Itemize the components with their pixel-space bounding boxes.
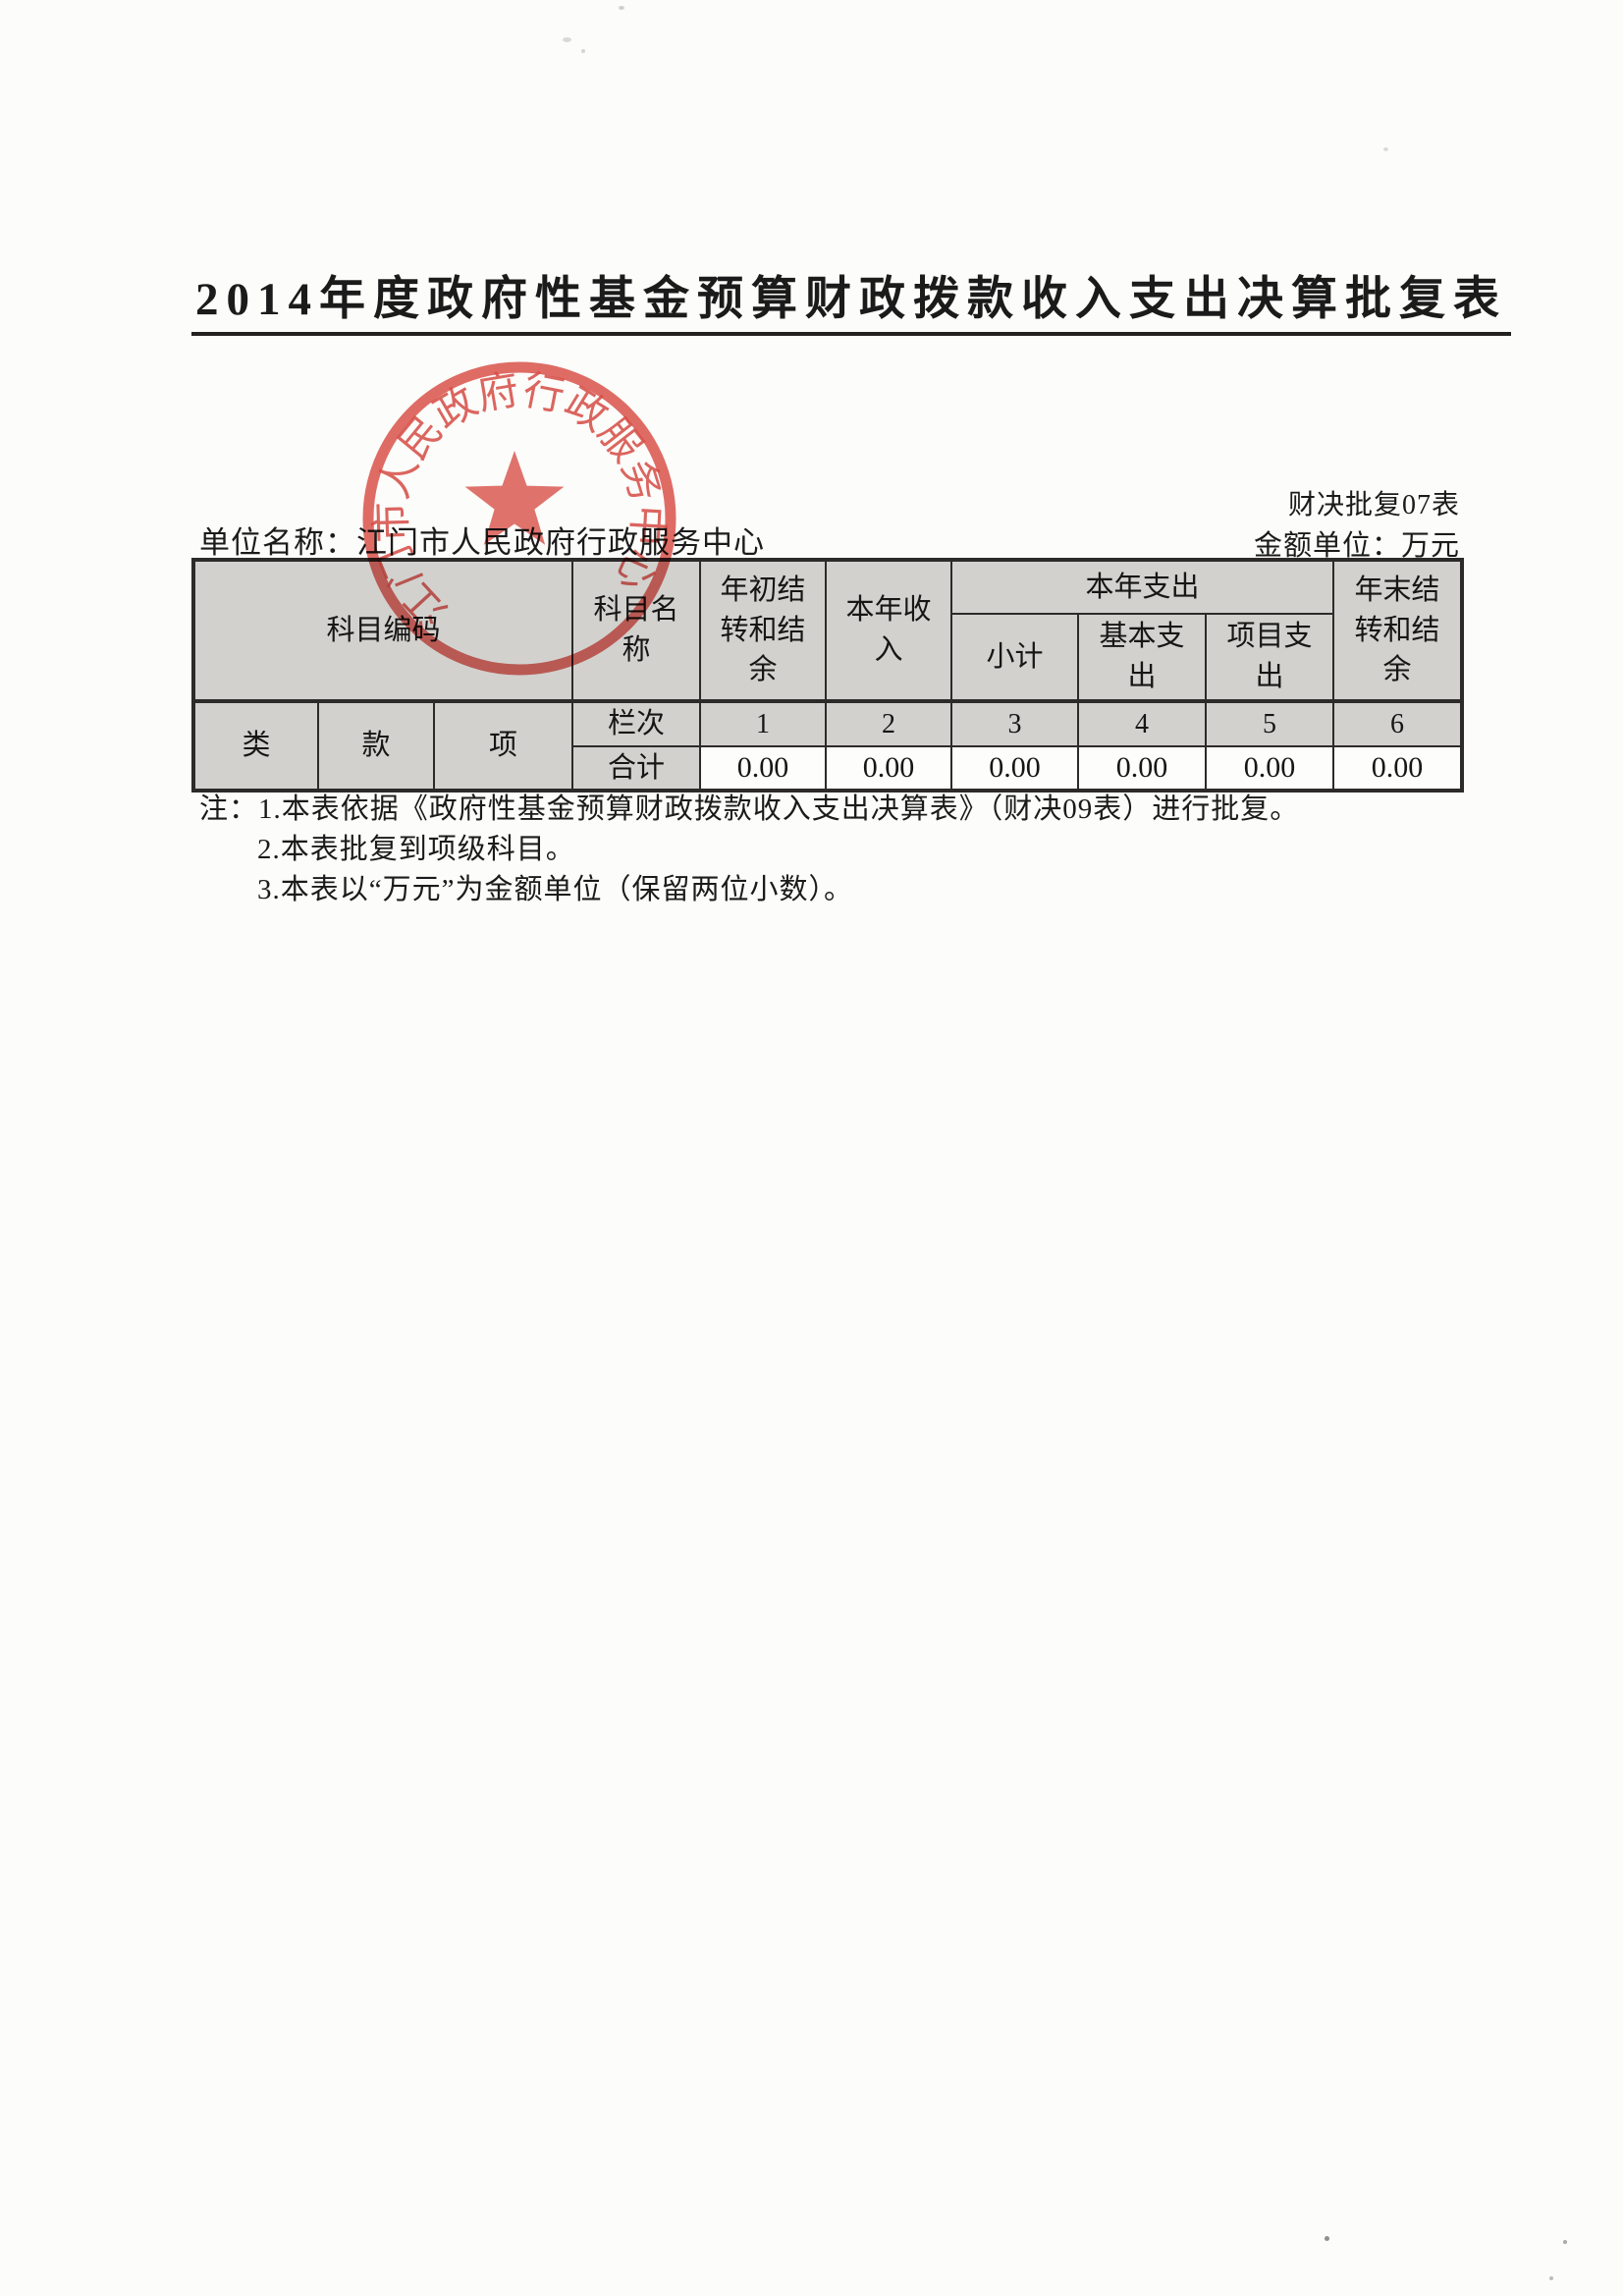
header-end-year-balance: 年末结转和结余 <box>1333 560 1462 701</box>
scanned-document-page: 2014年度政府性基金预算财政拨款收入支出决算批复表 财决批复07表 单位名称：… <box>0 0 1623 2296</box>
scan-speck <box>563 37 571 42</box>
scan-speck <box>581 49 585 53</box>
total-value: 0.00 <box>1333 746 1462 791</box>
total-row-label: 合计 <box>572 746 700 791</box>
footnote-line-3: 3.本表以“万元”为金额单位（保留两位小数）。 <box>257 870 1299 910</box>
total-value: 0.00 <box>826 746 951 791</box>
column-number: 6 <box>1333 701 1462 746</box>
header-subject-code: 科目编码 <box>193 560 572 701</box>
total-value: 0.00 <box>700 746 826 791</box>
header-current-year-expense: 本年支出 <box>951 560 1333 614</box>
header-subtotal: 小计 <box>951 614 1078 701</box>
column-number: 1 <box>700 701 826 746</box>
budget-approval-table: 科目编码 科目名称 年初结转和结余 本年收入 本年支出 年末结转和结余 小计 基… <box>191 558 1464 793</box>
unit-name-label: 单位名称： <box>199 525 356 560</box>
total-value: 0.00 <box>951 746 1078 791</box>
unit-name-value: 江门市人民政府行政服务中心 <box>356 525 765 560</box>
header-project-expense: 项目支出 <box>1206 614 1333 701</box>
header-class: 类 <box>193 701 318 791</box>
scan-speck <box>1383 147 1388 151</box>
column-number: 4 <box>1078 701 1206 746</box>
header-current-year-income: 本年收入 <box>826 560 951 701</box>
scan-speck <box>1563 2240 1567 2244</box>
header-begin-year-balance: 年初结转和结余 <box>700 560 826 701</box>
column-number: 2 <box>826 701 951 746</box>
header-item: 项 <box>434 701 572 791</box>
total-value: 0.00 <box>1206 746 1333 791</box>
footnote-line-1: 注：1.本表依据《政府性基金预算财政拨款收入支出决算表》（财决09表）进行批复。 <box>199 790 1299 830</box>
scan-speck <box>1549 2276 1553 2280</box>
header-basic-expense: 基本支出 <box>1078 614 1206 701</box>
footnote-prefix: 注： <box>199 793 258 825</box>
title-container: 2014年度政府性基金预算财政拨款收入支出决算批复表 <box>191 273 1460 336</box>
page-title: 2014年度政府性基金预算财政拨款收入支出决算批复表 <box>191 273 1511 336</box>
column-index-label: 栏次 <box>572 701 700 746</box>
footnote-line-2: 2.本表批复到项级科目。 <box>257 830 1299 870</box>
header-subject-name: 科目名称 <box>572 560 700 701</box>
column-number: 5 <box>1206 701 1333 746</box>
scan-speck <box>1325 2236 1329 2241</box>
header-clause: 款 <box>318 701 434 791</box>
form-code-label: 财决批复07表 <box>1288 483 1460 522</box>
scan-speck <box>619 6 624 10</box>
unit-name-line: 单位名称：江门市人民政府行政服务中心 <box>199 518 765 562</box>
column-number: 3 <box>951 701 1078 746</box>
total-value: 0.00 <box>1078 746 1206 791</box>
footnotes: 注：1.本表依据《政府性基金预算财政拨款收入支出决算表》（财决09表）进行批复。… <box>199 790 1299 910</box>
